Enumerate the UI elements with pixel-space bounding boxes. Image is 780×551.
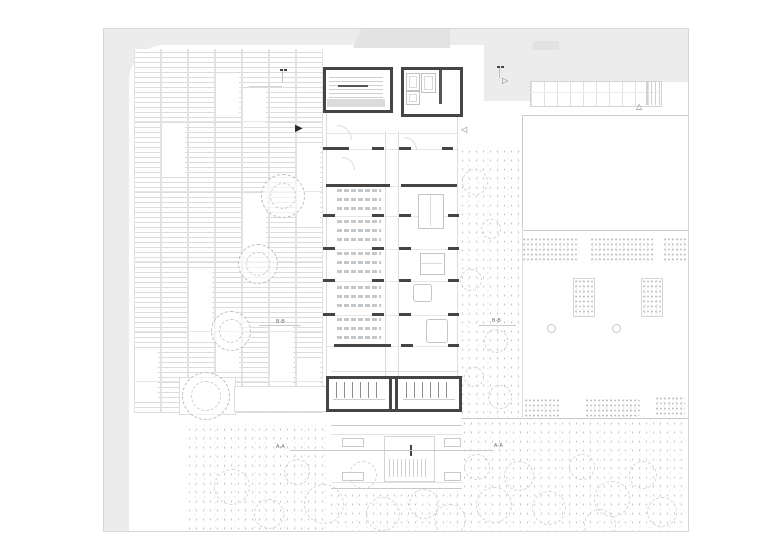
terrace-column-pad <box>444 438 461 447</box>
section-label-bb-right: B-B <box>492 318 501 324</box>
section-tick-leader <box>282 71 283 82</box>
section-tick <box>284 69 287 71</box>
section-tick <box>501 66 504 68</box>
terrace-column-pad <box>342 472 364 481</box>
entry-arrow-filled-icon: ▶ <box>295 124 303 134</box>
section-label-aa-left: A-A <box>276 444 285 450</box>
section-label-bb-left: B-B <box>276 319 285 325</box>
section-line-bb-right <box>479 325 516 326</box>
exterior-stair-treads <box>389 459 429 477</box>
section-line-bb-left <box>259 325 301 326</box>
section-tick-leader <box>499 68 500 78</box>
terrace-column-pad <box>444 472 461 481</box>
terrace-column-pad <box>342 438 364 447</box>
leader-line <box>249 86 282 87</box>
entry-arrow-open-left-icon: ◁ <box>461 126 467 134</box>
entry-arrow-open-right-icon: ▷ <box>502 77 508 85</box>
plan-sheet: A-A A-A B-B B-B ▶ ◁ ▷ △ <box>103 28 689 532</box>
section-label-aa-right: A-A <box>494 443 503 449</box>
entry-arrow-open-up-icon: △ <box>636 103 642 111</box>
section-line-aa <box>290 450 492 451</box>
